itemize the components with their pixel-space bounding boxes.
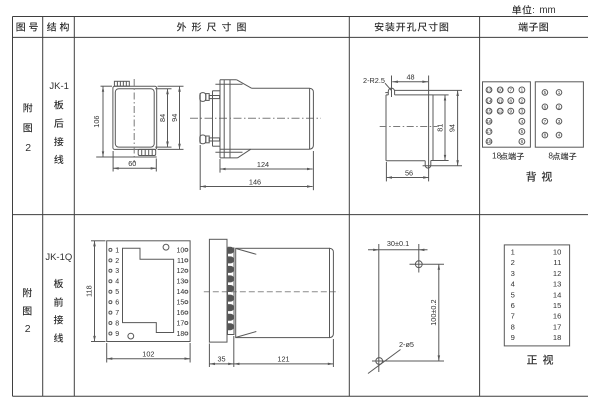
svg-text:7: 7 — [115, 310, 119, 317]
svg-text:11: 11 — [177, 258, 184, 265]
svg-text:4: 4 — [115, 279, 119, 286]
svg-text:2-ø5: 2-ø5 — [399, 340, 414, 349]
svg-text:2: 2 — [115, 258, 119, 265]
svg-text:121: 121 — [277, 355, 289, 364]
svg-text:16: 16 — [553, 312, 561, 321]
svg-text:15: 15 — [177, 300, 185, 307]
svg-text:3: 3 — [521, 109, 524, 114]
svg-text:9: 9 — [115, 331, 119, 338]
svg-text:9: 9 — [510, 109, 513, 114]
svg-text:56: 56 — [405, 168, 413, 177]
svg-text:10: 10 — [553, 248, 561, 257]
svg-text:4: 4 — [511, 280, 515, 289]
svg-text:13: 13 — [553, 280, 561, 289]
svg-text:1: 1 — [115, 247, 119, 254]
svg-text:6: 6 — [115, 300, 119, 307]
svg-text:JK-1: JK-1 — [49, 81, 69, 92]
svg-text:11: 11 — [498, 98, 503, 103]
svg-text:7: 7 — [544, 119, 547, 124]
svg-text:14: 14 — [177, 289, 185, 296]
svg-text:12: 12 — [553, 269, 561, 278]
svg-text:18: 18 — [177, 331, 185, 338]
svg-text:84: 84 — [158, 114, 167, 122]
svg-text:2: 2 — [558, 104, 561, 109]
svg-text:8: 8 — [511, 322, 515, 331]
svg-text:94: 94 — [447, 124, 456, 132]
svg-text:16: 16 — [486, 119, 492, 124]
svg-text:3: 3 — [511, 269, 515, 278]
svg-text:60: 60 — [128, 159, 136, 168]
svg-text:4: 4 — [521, 119, 524, 124]
svg-text:2: 2 — [521, 98, 524, 103]
svg-text:17: 17 — [486, 129, 492, 134]
svg-text:94: 94 — [170, 114, 179, 122]
svg-text:13: 13 — [486, 88, 492, 93]
svg-text:5: 5 — [544, 90, 547, 95]
svg-text:JK-1Q: JK-1Q — [45, 252, 72, 263]
svg-text:146: 146 — [249, 177, 261, 186]
svg-text:6: 6 — [511, 301, 515, 310]
svg-text:8: 8 — [544, 133, 547, 138]
svg-text:5: 5 — [511, 290, 515, 299]
svg-text:15: 15 — [553, 301, 561, 310]
svg-text:14: 14 — [486, 98, 492, 103]
svg-text:118: 118 — [85, 285, 94, 297]
svg-text::: : — [532, 5, 535, 16]
svg-text:14: 14 — [553, 290, 561, 299]
svg-text:2-R2.5: 2-R2.5 — [363, 76, 385, 85]
svg-text:12: 12 — [498, 109, 504, 114]
svg-text:9: 9 — [511, 333, 515, 342]
svg-text:17: 17 — [553, 322, 561, 331]
svg-text:2: 2 — [25, 323, 31, 335]
svg-text:35: 35 — [217, 355, 225, 364]
svg-text:8: 8 — [548, 151, 553, 161]
svg-text:124: 124 — [257, 160, 269, 169]
svg-text:18: 18 — [486, 139, 492, 144]
svg-text:6: 6 — [544, 104, 547, 109]
svg-text:10: 10 — [498, 88, 504, 93]
svg-text:7: 7 — [510, 88, 513, 93]
svg-text:5: 5 — [115, 289, 119, 296]
svg-text:18: 18 — [553, 333, 561, 342]
svg-text:6: 6 — [521, 139, 524, 144]
svg-text:15: 15 — [486, 109, 492, 114]
svg-text:100±0.2: 100±0.2 — [429, 299, 438, 325]
svg-text:13: 13 — [177, 279, 185, 286]
svg-text:mm: mm — [539, 5, 555, 16]
svg-text:102: 102 — [142, 350, 154, 359]
svg-text:16: 16 — [177, 310, 185, 317]
svg-text:4: 4 — [558, 133, 561, 138]
svg-text:106: 106 — [92, 116, 101, 128]
svg-text:1: 1 — [558, 90, 561, 95]
svg-text:1: 1 — [511, 248, 515, 257]
svg-text:2: 2 — [511, 258, 515, 267]
svg-text:17: 17 — [177, 320, 185, 327]
svg-text:30±0.1: 30±0.1 — [387, 239, 409, 248]
svg-text:5: 5 — [521, 129, 524, 134]
svg-text:12: 12 — [177, 268, 185, 275]
svg-text:10: 10 — [177, 247, 185, 254]
svg-text:11: 11 — [553, 258, 561, 267]
svg-text:7: 7 — [511, 312, 515, 321]
svg-text:3: 3 — [558, 119, 561, 124]
svg-text:8: 8 — [510, 98, 513, 103]
svg-text:81: 81 — [436, 124, 445, 132]
svg-text:8: 8 — [115, 320, 119, 327]
svg-text:1: 1 — [521, 88, 524, 93]
svg-text:3: 3 — [115, 268, 119, 275]
svg-text:2: 2 — [25, 142, 31, 154]
svg-text:48: 48 — [406, 73, 414, 82]
svg-text:18: 18 — [492, 151, 502, 161]
